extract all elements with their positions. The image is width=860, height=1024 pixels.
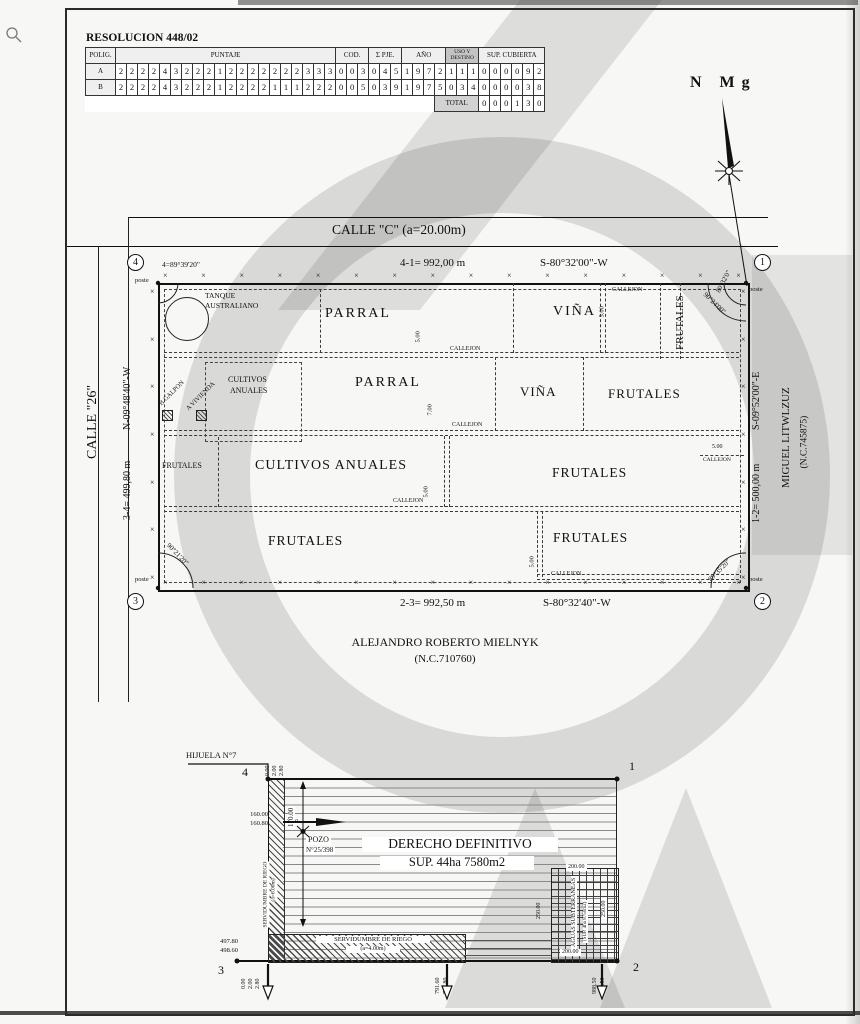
table-cell: 0 bbox=[501, 80, 512, 96]
fence-tick: × bbox=[660, 579, 665, 587]
table-cell: 3 bbox=[457, 80, 468, 96]
table-cell: 2 bbox=[116, 80, 127, 96]
zone-parral-2: PARRAL bbox=[355, 375, 421, 390]
dim-5-strip1: 5.00 bbox=[600, 306, 607, 317]
fence-tick: × bbox=[469, 272, 474, 280]
fence-tick: × bbox=[583, 579, 588, 587]
point-1-label: 1 bbox=[629, 760, 635, 773]
offset-4-b: 2.00 bbox=[272, 766, 278, 777]
conn-line-1 bbox=[463, 940, 551, 941]
table-cell: 2 bbox=[226, 64, 237, 80]
fence-tick: × bbox=[392, 579, 397, 587]
galpon-building bbox=[162, 410, 173, 421]
table-cell: 9 bbox=[413, 80, 424, 96]
bearing-left: N-09°48'40"-W bbox=[123, 367, 133, 430]
fence-tick: × bbox=[150, 288, 155, 296]
hijuela-label: HIJUELA N°7 bbox=[186, 751, 236, 760]
table-cell: 0 bbox=[336, 80, 347, 96]
zone-vina-2: VIÑA bbox=[520, 385, 557, 399]
poste-label-4: poste bbox=[135, 277, 149, 284]
table-cell: B bbox=[86, 80, 116, 96]
aguas-height-right: 250.00 bbox=[601, 899, 607, 920]
fence-tick: × bbox=[741, 336, 746, 344]
corner-1-marker: 1 bbox=[754, 254, 771, 271]
bl-dim-a: 497.80 bbox=[198, 938, 238, 945]
bearing-right: S-09°52'00"-E bbox=[752, 372, 762, 430]
table-cell: 2 bbox=[281, 64, 292, 80]
fence-tick: × bbox=[741, 574, 746, 582]
dim-5-h3: 5.00 bbox=[424, 486, 431, 497]
fence-tick: × bbox=[698, 272, 703, 280]
table-cell: 2 bbox=[138, 64, 149, 80]
table-row: B222243222122221112220050391975034000038 bbox=[86, 80, 545, 96]
lower-top-line bbox=[268, 778, 617, 780]
fence-tick: × bbox=[545, 272, 550, 280]
derecho-title-2: SUP. 44ha 7580m2 bbox=[380, 856, 534, 870]
table-cell: 0 bbox=[490, 64, 501, 80]
magnifier-cursor-icon bbox=[5, 26, 23, 44]
left-dim-d: 170.00 bbox=[288, 806, 295, 829]
table-cell: 9 bbox=[523, 64, 534, 80]
table-cell: 2 bbox=[270, 64, 281, 80]
offset-3-a: 0.00 bbox=[241, 979, 247, 990]
fence-tick: × bbox=[201, 272, 206, 280]
fence-tick: × bbox=[583, 272, 588, 280]
fence-tick: × bbox=[507, 272, 512, 280]
table-cell: 1 bbox=[457, 64, 468, 80]
fence-tick: × bbox=[660, 272, 665, 280]
callejon-v2 bbox=[444, 436, 450, 507]
fence-tick: × bbox=[392, 272, 397, 280]
dim-5-h1: 5.00 bbox=[416, 331, 423, 342]
dim-7-h2: 7.00 bbox=[428, 404, 435, 415]
callejon-h1 bbox=[164, 352, 739, 358]
zone-frutales-b4-right: FRUTALES bbox=[553, 531, 628, 546]
street-line-top-outer bbox=[128, 217, 768, 218]
table-cell: 1 bbox=[281, 80, 292, 96]
tanque-area-divide bbox=[320, 289, 321, 353]
tanque-circle bbox=[165, 297, 209, 341]
poste-label-2: poste bbox=[749, 576, 763, 583]
table-cell: 3 bbox=[380, 80, 391, 96]
table-cell: 2 bbox=[127, 64, 138, 80]
table-cell: 2 bbox=[435, 64, 446, 80]
table-cell: 5 bbox=[391, 64, 402, 80]
dim-left: 3-4= 499,80 m bbox=[123, 461, 133, 520]
pozo-label-1: POZO bbox=[306, 836, 331, 845]
left-dim-a: 160.00 bbox=[228, 811, 268, 818]
owner-name: ALEJANDRO ROBERTO MIELNYK bbox=[330, 636, 560, 649]
table-cell: 0 bbox=[501, 96, 512, 112]
table-cell: 2 bbox=[149, 64, 160, 80]
table-cell: PUNTAJE bbox=[116, 48, 336, 64]
point-2-label: 2 bbox=[633, 961, 639, 974]
left-dim-b: 160.80 bbox=[228, 820, 268, 827]
table-cell: 2 bbox=[193, 80, 204, 96]
corner-4-marker: 4 bbox=[127, 254, 144, 271]
fence-tick: × bbox=[354, 579, 359, 587]
fence-ticks-top: ×××××××××××××××× bbox=[163, 272, 741, 280]
fence-tick: × bbox=[150, 526, 155, 534]
table-cell: 1 bbox=[402, 64, 413, 80]
callejon-label-5: CALLEJON bbox=[703, 457, 731, 463]
fence-tick: × bbox=[622, 579, 627, 587]
fence-tick: × bbox=[239, 272, 244, 280]
corner-3-marker: 3 bbox=[127, 593, 144, 610]
table-cell: 2 bbox=[325, 80, 336, 96]
point-3-label: 3 bbox=[218, 964, 224, 977]
table-cell: 9 bbox=[413, 64, 424, 80]
cultivos-upper-box bbox=[205, 362, 302, 442]
zone-vina-1: VIÑA bbox=[553, 304, 596, 319]
fence-ticks-left: ××××××× bbox=[150, 288, 155, 582]
table-cell: 3 bbox=[303, 64, 314, 80]
fence-tick: × bbox=[545, 579, 550, 587]
table-cell: 4 bbox=[380, 64, 391, 80]
table-cell: 2 bbox=[127, 80, 138, 96]
servidumbre-h-label-2: (a=4.00m) bbox=[346, 946, 400, 953]
fence-tick: × bbox=[741, 431, 746, 439]
corner-2-marker: 2 bbox=[754, 593, 771, 610]
dim-right: 1-2= 500,00 m bbox=[752, 464, 762, 523]
fence-tick: × bbox=[736, 272, 741, 280]
table-cell: 0 bbox=[336, 64, 347, 80]
table-cell: 1 bbox=[215, 64, 226, 80]
table-cell: 0 bbox=[490, 96, 501, 112]
uso-header-line2: DESTINO bbox=[446, 56, 478, 62]
table-cell: 3 bbox=[171, 80, 182, 96]
table-cell: COD. bbox=[336, 48, 369, 64]
fence-tick: × bbox=[354, 272, 359, 280]
fence-tick: × bbox=[201, 579, 206, 587]
dim-5-right-edge: 5.00 bbox=[712, 444, 723, 451]
table-cell: 1 bbox=[270, 80, 281, 96]
table-cell: POLIG. bbox=[86, 48, 116, 64]
table-cell: 1 bbox=[292, 80, 303, 96]
table-cell: 2 bbox=[116, 64, 127, 80]
table-cell: A bbox=[86, 64, 116, 80]
offset-3-c: 2.80 bbox=[255, 979, 261, 990]
neighbor-right-name: MIGUEL LITWLZUZ bbox=[781, 387, 792, 488]
fence-tick: × bbox=[239, 579, 244, 587]
table-cell: SUP. CUBIERTA bbox=[479, 48, 545, 64]
aguas-width-bottom: 200.00 bbox=[560, 949, 581, 956]
table-cell: 1 bbox=[468, 64, 479, 80]
neighbor-right-nc: (N.C.745875) bbox=[801, 416, 811, 469]
table-cell: 2 bbox=[182, 80, 193, 96]
pozo-label-2: N°25/398 bbox=[304, 847, 335, 855]
fence-tick: × bbox=[741, 479, 746, 487]
table-cell: 2 bbox=[204, 80, 215, 96]
zone-frutales-b4-left: FRUTALES bbox=[268, 534, 343, 549]
zone-cultivos-upper-2: ANUALES bbox=[230, 387, 267, 396]
table-cell: 0 bbox=[347, 80, 358, 96]
servidumbre-v-label-1: SERVIDUMBRE DE RIEGO bbox=[264, 862, 270, 928]
callejon-v3 bbox=[537, 511, 543, 577]
fence-tick: × bbox=[316, 579, 321, 587]
table-cell: 8 bbox=[534, 80, 545, 96]
fence-tick: × bbox=[698, 579, 703, 587]
poste-label-3: poste bbox=[135, 576, 149, 583]
table-cell: 4 bbox=[160, 64, 171, 80]
dim-bottom: 2-3= 992,50 m bbox=[400, 597, 465, 609]
street-line-left-inner bbox=[128, 217, 129, 702]
zone-parral-1: PARRAL bbox=[325, 306, 391, 321]
table-cell: 7 bbox=[424, 64, 435, 80]
callejon-label-1: CALLEJON bbox=[612, 287, 642, 294]
fence-tick: × bbox=[163, 579, 168, 587]
table-cell: 9 bbox=[391, 80, 402, 96]
fence-tick: × bbox=[431, 272, 436, 280]
zone-frutales-strip: FRUTALES bbox=[675, 295, 686, 350]
table-cell: 0 bbox=[479, 80, 490, 96]
table-cell: 3 bbox=[171, 64, 182, 80]
table-cell: 2 bbox=[138, 80, 149, 96]
table-cell: 1 bbox=[512, 96, 523, 112]
divide-parral-vina-2 bbox=[495, 357, 496, 431]
conn-line-2 bbox=[463, 948, 551, 949]
table-cell: 0 bbox=[369, 80, 380, 96]
table-cell: 1 bbox=[446, 64, 457, 80]
br-dim-a: 988.50 bbox=[592, 978, 598, 995]
table-cell: 2 bbox=[248, 80, 259, 96]
table-cell: 0 bbox=[490, 80, 501, 96]
fence-tick: × bbox=[150, 479, 155, 487]
table-cell: 2 bbox=[193, 64, 204, 80]
fence-ticks-right: ××××××× bbox=[741, 288, 746, 582]
table-cell: 0 bbox=[512, 80, 523, 96]
bm-dim-b: 791.80 bbox=[443, 978, 449, 995]
table-cell: 3 bbox=[358, 64, 369, 80]
fence-tick: × bbox=[278, 579, 283, 587]
table-cell: 0 bbox=[534, 96, 545, 112]
table-cell: 4 bbox=[160, 80, 171, 96]
fence-tick: × bbox=[150, 431, 155, 439]
street-line-left-outer bbox=[98, 246, 99, 702]
fence-tick: × bbox=[431, 579, 436, 587]
table-cell: 5 bbox=[358, 80, 369, 96]
callejon-label-6: CALLEJON bbox=[551, 571, 581, 578]
fence-tick: × bbox=[150, 383, 155, 391]
dim-top: 4-1= 992,00 m bbox=[400, 257, 465, 269]
table-cell: 1 bbox=[402, 80, 413, 96]
zone-cultivos-b3: CULTIVOS ANUALES bbox=[255, 458, 407, 473]
table-title: RESOLUCION 448/02 bbox=[86, 32, 198, 45]
table-cell: 0 bbox=[479, 96, 490, 112]
bl-dim-b: 498.60 bbox=[198, 947, 238, 954]
table-cell: 0 bbox=[479, 64, 490, 80]
street-line-top-inner bbox=[67, 246, 778, 247]
aguas-label-2: (SUP. 4ha 8750m2) bbox=[583, 900, 588, 943]
point-4-label: 4 bbox=[242, 766, 248, 779]
table-cell: 2 bbox=[248, 64, 259, 80]
table-cell: 0 bbox=[347, 64, 358, 80]
fence-tick: × bbox=[163, 272, 168, 280]
resolution-table: POLIG.PUNTAJECOD.Σ PJE.AÑOUSO YDESTINOSU… bbox=[85, 47, 545, 112]
table-cell: 2 bbox=[204, 64, 215, 80]
fence-tick: × bbox=[741, 526, 746, 534]
table-cell: 2 bbox=[303, 80, 314, 96]
divide-vina-frutales-2 bbox=[583, 357, 584, 431]
table-cell: Σ PJE. bbox=[369, 48, 402, 64]
table-cell: 2 bbox=[226, 80, 237, 96]
bearing-top: S-80°32'00"-W bbox=[540, 257, 608, 269]
table-cell: USO YDESTINO bbox=[446, 48, 479, 64]
table-cell: 2 bbox=[259, 64, 270, 80]
table-cell: 3 bbox=[325, 64, 336, 80]
callejon-label-2: CALLEJON bbox=[450, 346, 480, 353]
table-cell: 2 bbox=[314, 80, 325, 96]
dim-5-strip4: 5.00 bbox=[530, 556, 537, 567]
fence-tick: × bbox=[316, 272, 321, 280]
table-cell: AÑO bbox=[402, 48, 446, 64]
table-cell: 1 bbox=[215, 80, 226, 96]
derecho-title-1: DERECHO DEFINITIVO bbox=[362, 837, 558, 852]
fence-tick: × bbox=[150, 336, 155, 344]
table-cell: 7 bbox=[424, 80, 435, 96]
table-cell: 2 bbox=[534, 64, 545, 80]
table-cell: 2 bbox=[259, 80, 270, 96]
zone-frutales-b2: FRUTALES bbox=[608, 387, 681, 401]
table-total-row: TOTAL000130 bbox=[86, 96, 545, 112]
table-cell bbox=[86, 96, 435, 112]
divide-vina-frutales-1 bbox=[660, 283, 661, 359]
street-top-label: CALLE "C" (a=20.00m) bbox=[332, 223, 466, 238]
offset-4-c: 2.80 bbox=[279, 766, 285, 777]
bearing-bottom: S-80°32'40"-W bbox=[543, 597, 611, 609]
table-cell: 2 bbox=[149, 80, 160, 96]
conn-line-3 bbox=[463, 955, 551, 956]
table-cell: 3 bbox=[523, 80, 534, 96]
servidumbre-v-strip bbox=[268, 780, 285, 960]
vivienda-building bbox=[196, 410, 207, 421]
callejon-label-4: CALLEJON bbox=[393, 498, 423, 505]
callejon-h3 bbox=[164, 506, 739, 512]
street-left-label: CALLE "26" bbox=[86, 385, 100, 459]
callejon-v1 bbox=[600, 283, 606, 353]
offset-3-b: 2.00 bbox=[248, 979, 254, 990]
fence-tick: × bbox=[741, 288, 746, 296]
fence-tick: × bbox=[278, 272, 283, 280]
fence-ticks-bottom: ×××××××××××××××× bbox=[163, 579, 741, 587]
fence-tick: × bbox=[741, 383, 746, 391]
table-cell: 2 bbox=[237, 64, 248, 80]
table-cell: 2 bbox=[182, 64, 193, 80]
divide-parral-vina-1 bbox=[513, 283, 514, 353]
servidumbre-v-label-2: (a=6.00m) bbox=[272, 878, 278, 901]
scanned-survey-plan: { "decor": { "fence_tick": "×" }, "curso… bbox=[0, 0, 860, 1024]
compass-label: N Mg bbox=[690, 74, 757, 92]
servidumbre-h-label-1: SERVIDUMBRE DE RIEGO bbox=[316, 936, 430, 943]
table-cell: 0 bbox=[369, 64, 380, 80]
bm-dim-a: 791.60 bbox=[435, 978, 441, 995]
table-cell: 5 bbox=[435, 80, 446, 96]
br-dim-b: 989.50 bbox=[600, 978, 606, 995]
table-cell: 0 bbox=[446, 80, 457, 96]
fence-tick: × bbox=[622, 272, 627, 280]
aguas-height-left: 250.00 bbox=[536, 903, 542, 920]
fence-tick: × bbox=[507, 579, 512, 587]
aguas-width-top: 200.00 bbox=[566, 864, 587, 871]
table-cell: 4 bbox=[468, 80, 479, 96]
callejon-label-3: CALLEJON bbox=[452, 422, 482, 429]
table-row: A222243222122222223330030451972111000092 bbox=[86, 64, 545, 80]
table-cell: 2 bbox=[292, 64, 303, 80]
fence-tick: × bbox=[150, 574, 155, 582]
table-cell: TOTAL bbox=[435, 96, 479, 112]
zone-cultivos-upper-1: CULTIVOS bbox=[228, 376, 267, 385]
frutales-small-box-edge bbox=[218, 437, 219, 507]
poste-label-1: poste bbox=[749, 286, 763, 293]
aguas-label-1: AGUAS SUBTERRANEAS bbox=[571, 876, 577, 949]
angle-corner-4: 4=89°39'20" bbox=[162, 261, 200, 269]
table-cell: 2 bbox=[237, 80, 248, 96]
owner-nc: (N.C.710760) bbox=[330, 653, 560, 665]
table-cell: 3 bbox=[523, 96, 534, 112]
scan-edge-smudge bbox=[238, 0, 858, 5]
table-cell: 0 bbox=[501, 64, 512, 80]
tanque-label-1: TANQUE bbox=[205, 292, 235, 300]
zone-frutales-b3: FRUTALES bbox=[552, 466, 627, 481]
tanque-label-2: AUSTRALIANO bbox=[205, 302, 258, 310]
fence-tick: × bbox=[469, 579, 474, 587]
callejon-right-dim-line bbox=[700, 455, 744, 456]
table-cell: 0 bbox=[512, 64, 523, 80]
zone-frutales-b3-small: FRUTALES bbox=[162, 462, 202, 471]
table-cell: 3 bbox=[314, 64, 325, 80]
offset-4-a: 0.00 bbox=[265, 766, 271, 777]
